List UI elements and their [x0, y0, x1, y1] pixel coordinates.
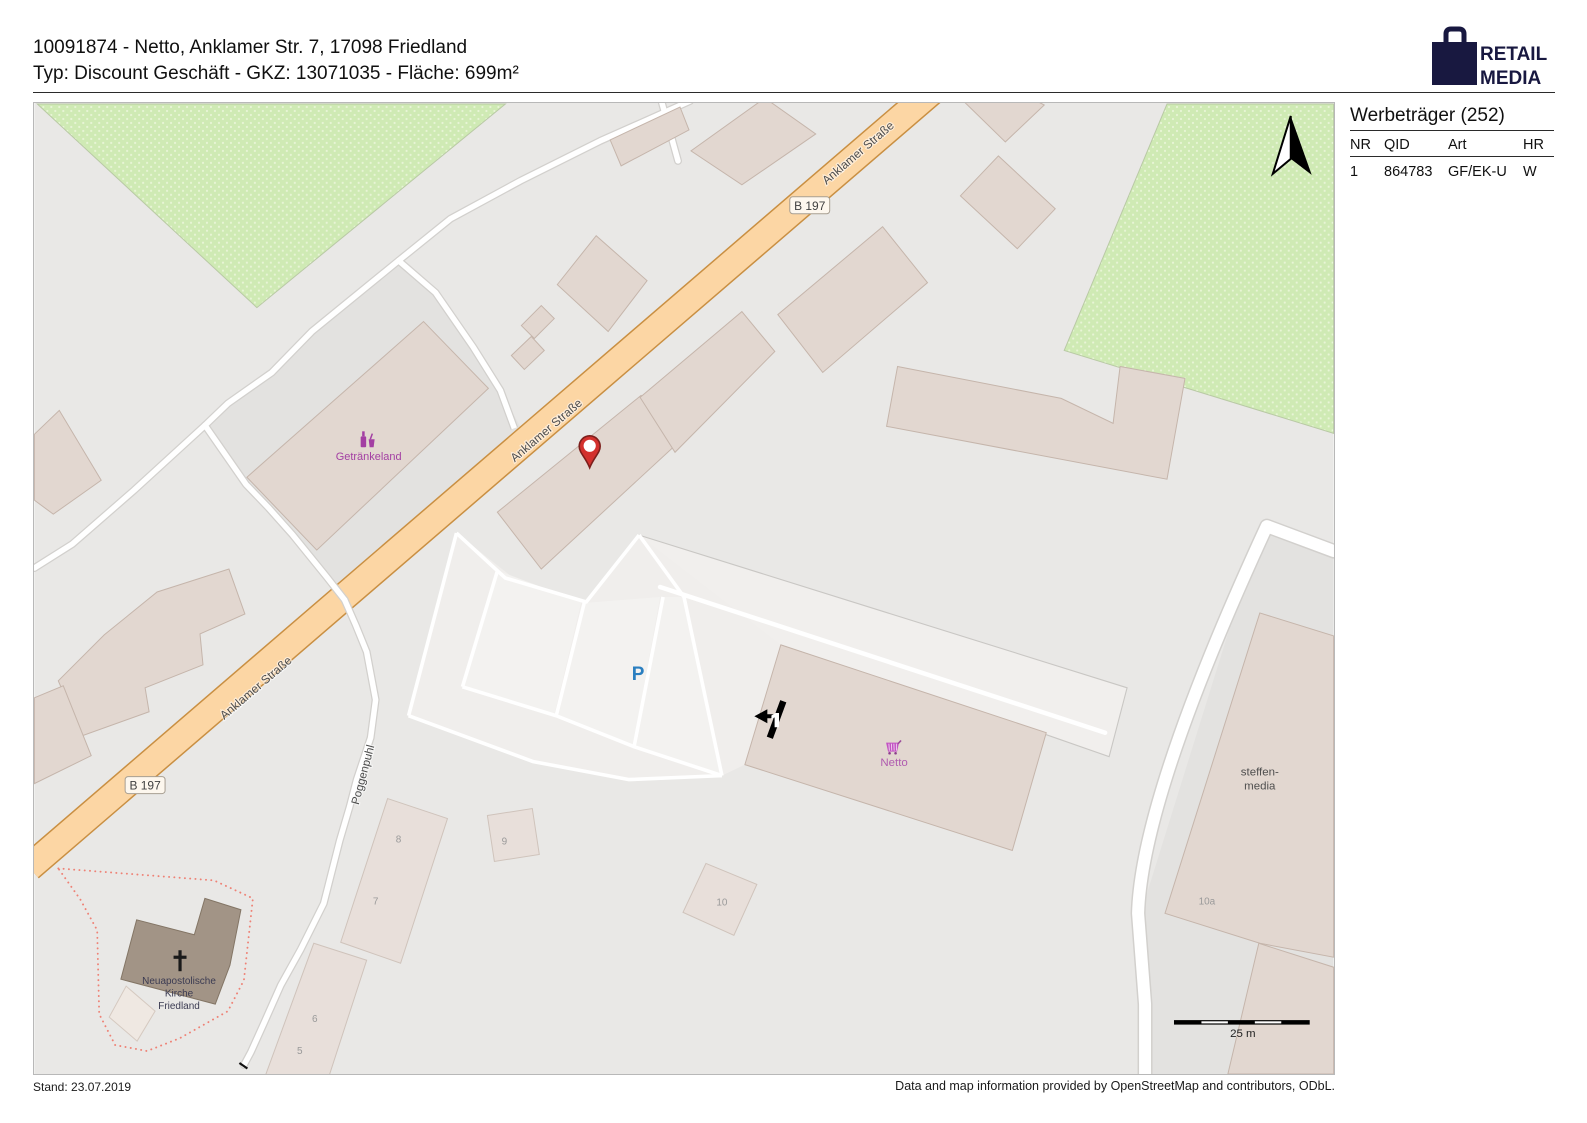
svg-text:Neuapostolische: Neuapostolische	[142, 976, 216, 987]
svg-text:B 197: B 197	[794, 199, 826, 213]
svg-text:25 m: 25 m	[1230, 1028, 1256, 1040]
svg-text:Friedland: Friedland	[158, 1001, 200, 1012]
svg-text:media: media	[1244, 781, 1276, 793]
svg-text:6: 6	[312, 1014, 318, 1025]
svg-text:Kirche: Kirche	[165, 989, 194, 1000]
svg-text:7: 7	[373, 896, 379, 907]
svg-text:5: 5	[297, 1046, 303, 1057]
svg-text:8: 8	[396, 834, 402, 845]
svg-text:10a: 10a	[1199, 896, 1216, 907]
svg-text:RETAIL: RETAIL	[1480, 44, 1548, 65]
svg-text:B 197: B 197	[129, 779, 161, 793]
svg-text:10: 10	[716, 897, 728, 908]
svg-text:Getränkeland: Getränkeland	[336, 451, 402, 463]
svg-text:P: P	[632, 664, 645, 685]
svg-text:Netto: Netto	[880, 757, 907, 769]
svg-text:9: 9	[502, 836, 508, 847]
svg-text:steffen-: steffen-	[1241, 767, 1279, 779]
svg-text:MEDIA: MEDIA	[1480, 68, 1542, 89]
